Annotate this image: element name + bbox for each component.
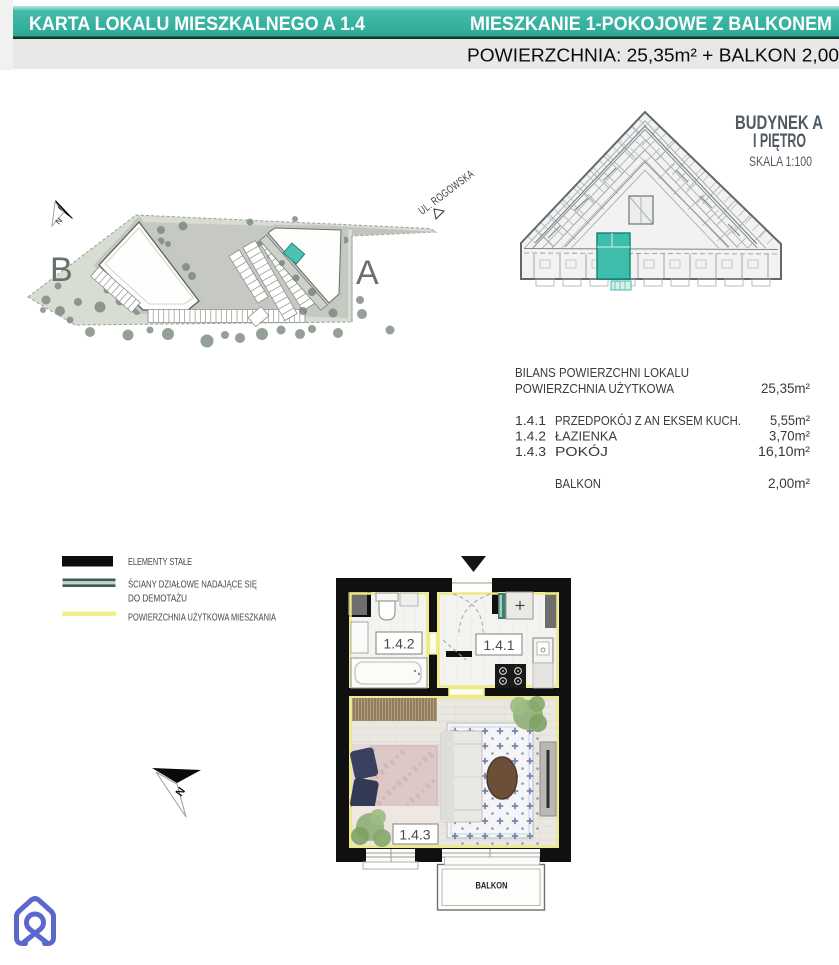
svg-text:1.4.1: 1.4.1 (483, 637, 514, 653)
svg-text:2,00m²: 2,00m² (768, 476, 810, 491)
svg-text:I PIĘTRO: I PIĘTRO (753, 131, 806, 152)
svg-text:BALKON: BALKON (555, 476, 601, 491)
svg-text:1.4.3: 1.4.3 (515, 444, 546, 459)
svg-text:16,10m²: 16,10m² (758, 444, 811, 459)
svg-text:PRZEDPOKÓJ Z AN EKSEM KUCH.: PRZEDPOKÓJ Z AN EKSEM KUCH. (555, 413, 741, 428)
svg-text:1.4.2: 1.4.2 (383, 636, 414, 652)
svg-text:DO DEMOTAŻU: DO DEMOTAŻU (128, 592, 187, 605)
svg-text:1.4.3: 1.4.3 (399, 827, 430, 843)
svg-text:ELEMENTY STAŁE: ELEMENTY STAŁE (128, 557, 192, 568)
svg-text:25,35m²: 25,35m² (761, 381, 810, 396)
svg-text:POWIERZCHNIA: 25,35m² + BALKO: POWIERZCHNIA: 25,35m² + BALKON 2,00 (467, 45, 839, 66)
svg-text:BILANS POWIERZCHNI LOKALU: BILANS POWIERZCHNI LOKALU (515, 365, 689, 380)
svg-text:POKÓJ: POKÓJ (555, 444, 608, 459)
svg-text:B: B (50, 251, 73, 289)
svg-text:ŚCIANY DZIAŁOWE NADAJĄCE SIĘ: ŚCIANY DZIAŁOWE NADAJĄCE SIĘ (128, 578, 257, 591)
svg-text:1.4.1: 1.4.1 (515, 413, 546, 428)
svg-text:3,70m²: 3,70m² (769, 429, 810, 444)
svg-text:KARTA LOKALU MIESZKALNEGO A 1: KARTA LOKALU MIESZKALNEGO A 1.4 (29, 14, 365, 35)
svg-text:BALKON: BALKON (476, 881, 508, 892)
svg-text:1.4.2: 1.4.2 (515, 429, 546, 444)
svg-text:ŁAZIENKA: ŁAZIENKA (555, 429, 617, 444)
svg-text:MIESZKANIE 1-POKOJOWE Z BALKON: MIESZKANIE 1-POKOJOWE Z BALKONEM (470, 14, 832, 35)
svg-text:POWIERZCHNIA UŻYTKOWA MIESZKAN: POWIERZCHNIA UŻYTKOWA MIESZKANIA (128, 611, 276, 624)
svg-text:POWIERZCHNIA UŻYTKOWA: POWIERZCHNIA UŻYTKOWA (515, 381, 674, 396)
svg-text:A: A (356, 254, 379, 292)
svg-text:5,55m²: 5,55m² (770, 413, 810, 428)
svg-text:SKALA 1:100: SKALA 1:100 (749, 154, 812, 169)
